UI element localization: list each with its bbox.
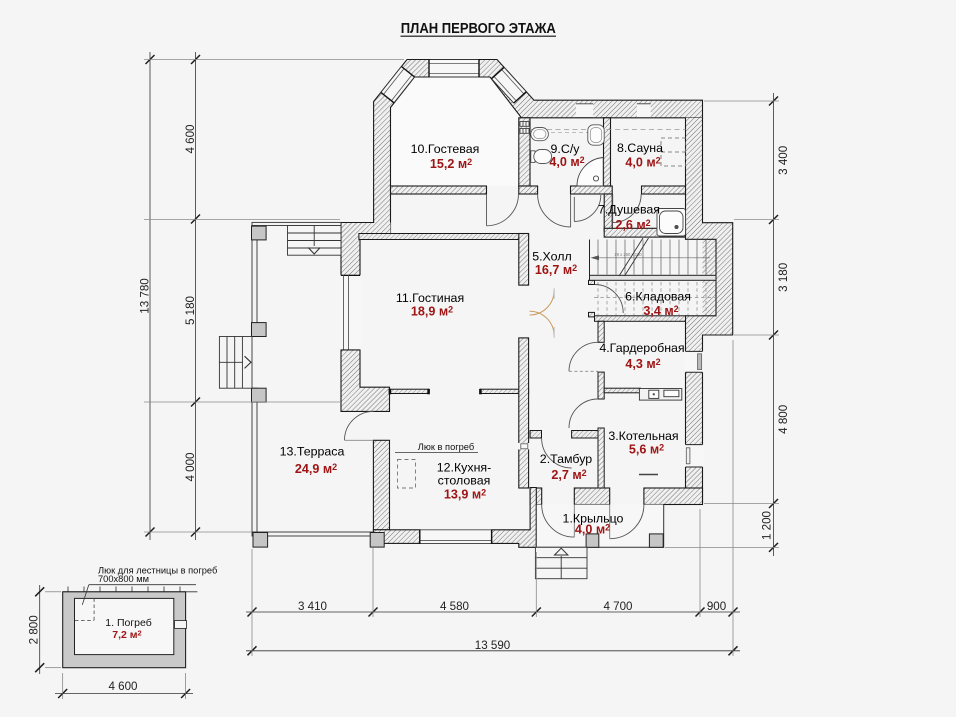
svg-text:8.Сауна: 8.Сауна xyxy=(617,141,663,155)
svg-text:1 200: 1 200 xyxy=(761,511,774,540)
svg-text:900: 900 xyxy=(707,600,726,613)
svg-text:4 600: 4 600 xyxy=(184,124,197,153)
svg-text:4,3 м2: 4,3 м2 xyxy=(625,357,660,371)
svg-text:3.Котельная: 3.Котельная xyxy=(608,429,678,443)
svg-text:11.Гостиная: 11.Гостиная xyxy=(396,291,464,305)
svg-text:4 800: 4 800 xyxy=(777,405,790,434)
svg-text:5,6 м2: 5,6 м2 xyxy=(629,443,664,457)
svg-text:5.Холл: 5.Холл xyxy=(532,249,572,263)
svg-text:4 000: 4 000 xyxy=(184,452,197,481)
svg-text:2.Тамбур: 2.Тамбур xyxy=(540,452,592,466)
svg-text:15,2 м2: 15,2 м2 xyxy=(430,157,472,171)
svg-text:18,9 м2: 18,9 м2 xyxy=(411,305,453,319)
svg-text:3 410: 3 410 xyxy=(298,600,327,613)
svg-text:4 580: 4 580 xyxy=(440,600,469,613)
svg-text:6.Кладовая: 6.Кладовая xyxy=(625,290,691,304)
svg-text:4,0 м2: 4,0 м2 xyxy=(575,522,610,536)
svg-text:2,6 м2: 2,6 м2 xyxy=(615,218,650,232)
svg-text:7,2 м2: 7,2 м2 xyxy=(112,629,141,642)
svg-text:24,9 м2: 24,9 м2 xyxy=(295,462,337,476)
svg-text:13 590: 13 590 xyxy=(475,639,510,652)
svg-text:ПЛАН ПЕРВОГО ЭТАЖА: ПЛАН ПЕРВОГО ЭТАЖА xyxy=(401,21,556,37)
svg-text:4,0 м2: 4,0 м2 xyxy=(549,155,584,169)
svg-text:4.Гардеробная: 4.Гардеробная xyxy=(599,341,684,355)
svg-text:столовая: столовая xyxy=(438,473,491,487)
svg-text:2 800: 2 800 xyxy=(28,615,41,644)
svg-text:3,4 м2: 3,4 м2 xyxy=(643,304,678,318)
svg-text:3 400: 3 400 xyxy=(777,146,790,175)
svg-text:10.Гостевая: 10.Гостевая xyxy=(411,142,480,156)
svg-text:4 600: 4 600 xyxy=(108,680,137,693)
svg-text:4 700: 4 700 xyxy=(603,600,632,613)
svg-text:13,9 м2: 13,9 м2 xyxy=(444,487,486,501)
svg-text:3 180: 3 180 xyxy=(777,263,790,292)
svg-text:1. Погреб: 1. Погреб xyxy=(105,617,151,629)
svg-text:Люк в погреб: Люк в погреб xyxy=(418,442,474,452)
svg-text:2,7 м2: 2,7 м2 xyxy=(551,468,586,482)
svg-text:13 780: 13 780 xyxy=(139,278,152,313)
svg-text:13.Терраса: 13.Терраса xyxy=(280,444,345,458)
svg-text:16,7 м2: 16,7 м2 xyxy=(535,263,577,277)
svg-text:9.С/у: 9.С/у xyxy=(551,142,581,156)
svg-text:7.Душевая: 7.Душевая xyxy=(598,202,660,216)
svg-text:5 180: 5 180 xyxy=(184,296,197,325)
svg-text:700х800 мм: 700х800 мм xyxy=(98,574,149,584)
svg-text:4,0 м2: 4,0 м2 xyxy=(625,155,660,169)
